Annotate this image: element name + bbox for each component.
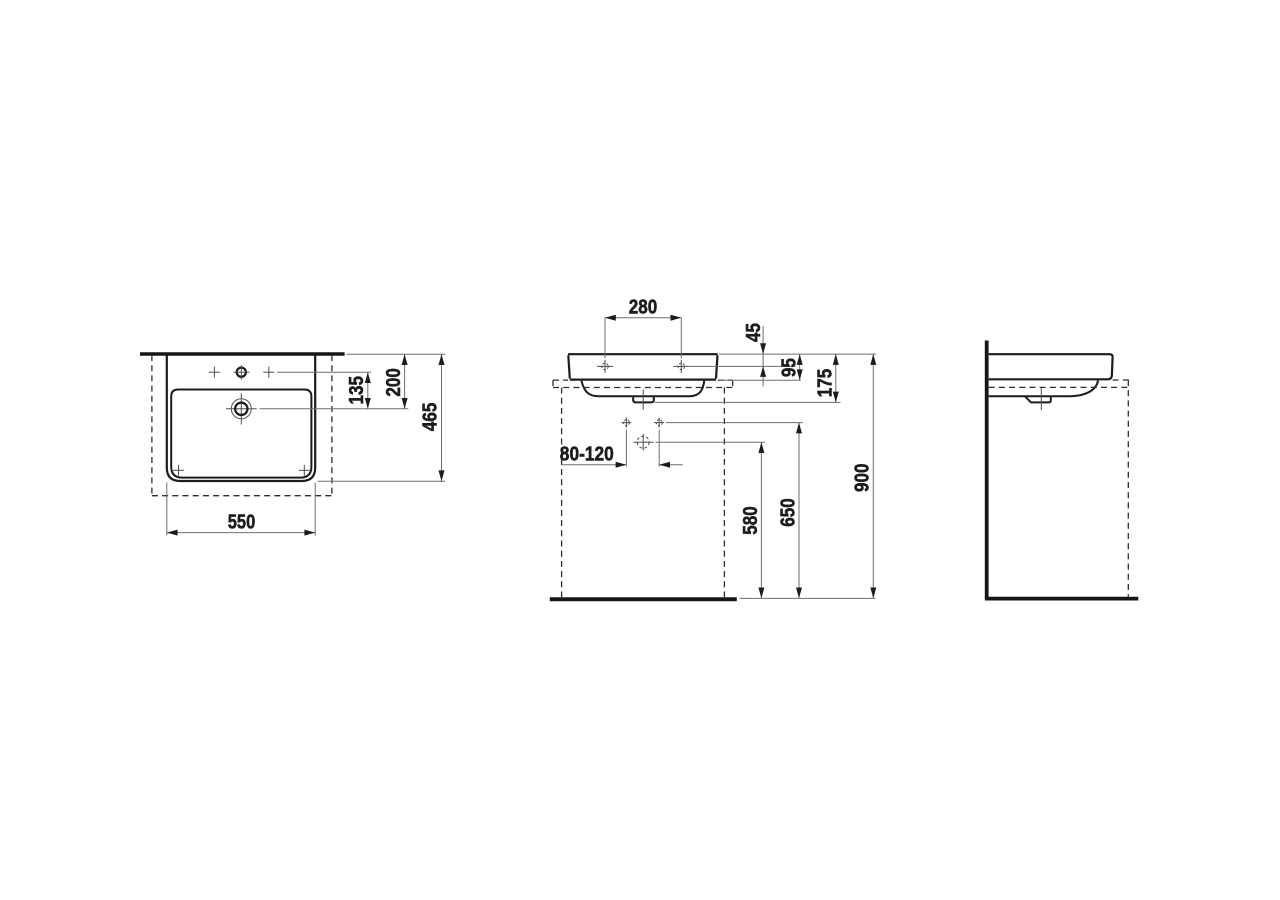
svg-text:175: 175 <box>814 369 837 398</box>
svg-text:280: 280 <box>629 296 658 319</box>
svg-text:580: 580 <box>739 506 762 535</box>
svg-text:45: 45 <box>742 323 765 342</box>
svg-text:200: 200 <box>382 368 405 397</box>
svg-text:465: 465 <box>419 403 442 432</box>
svg-text:650: 650 <box>777 498 800 527</box>
svg-text:550: 550 <box>228 510 256 533</box>
svg-text:80-120: 80-120 <box>560 443 614 466</box>
svg-text:900: 900 <box>851 464 874 493</box>
svg-text:135: 135 <box>345 376 368 405</box>
svg-text:95: 95 <box>778 358 801 377</box>
